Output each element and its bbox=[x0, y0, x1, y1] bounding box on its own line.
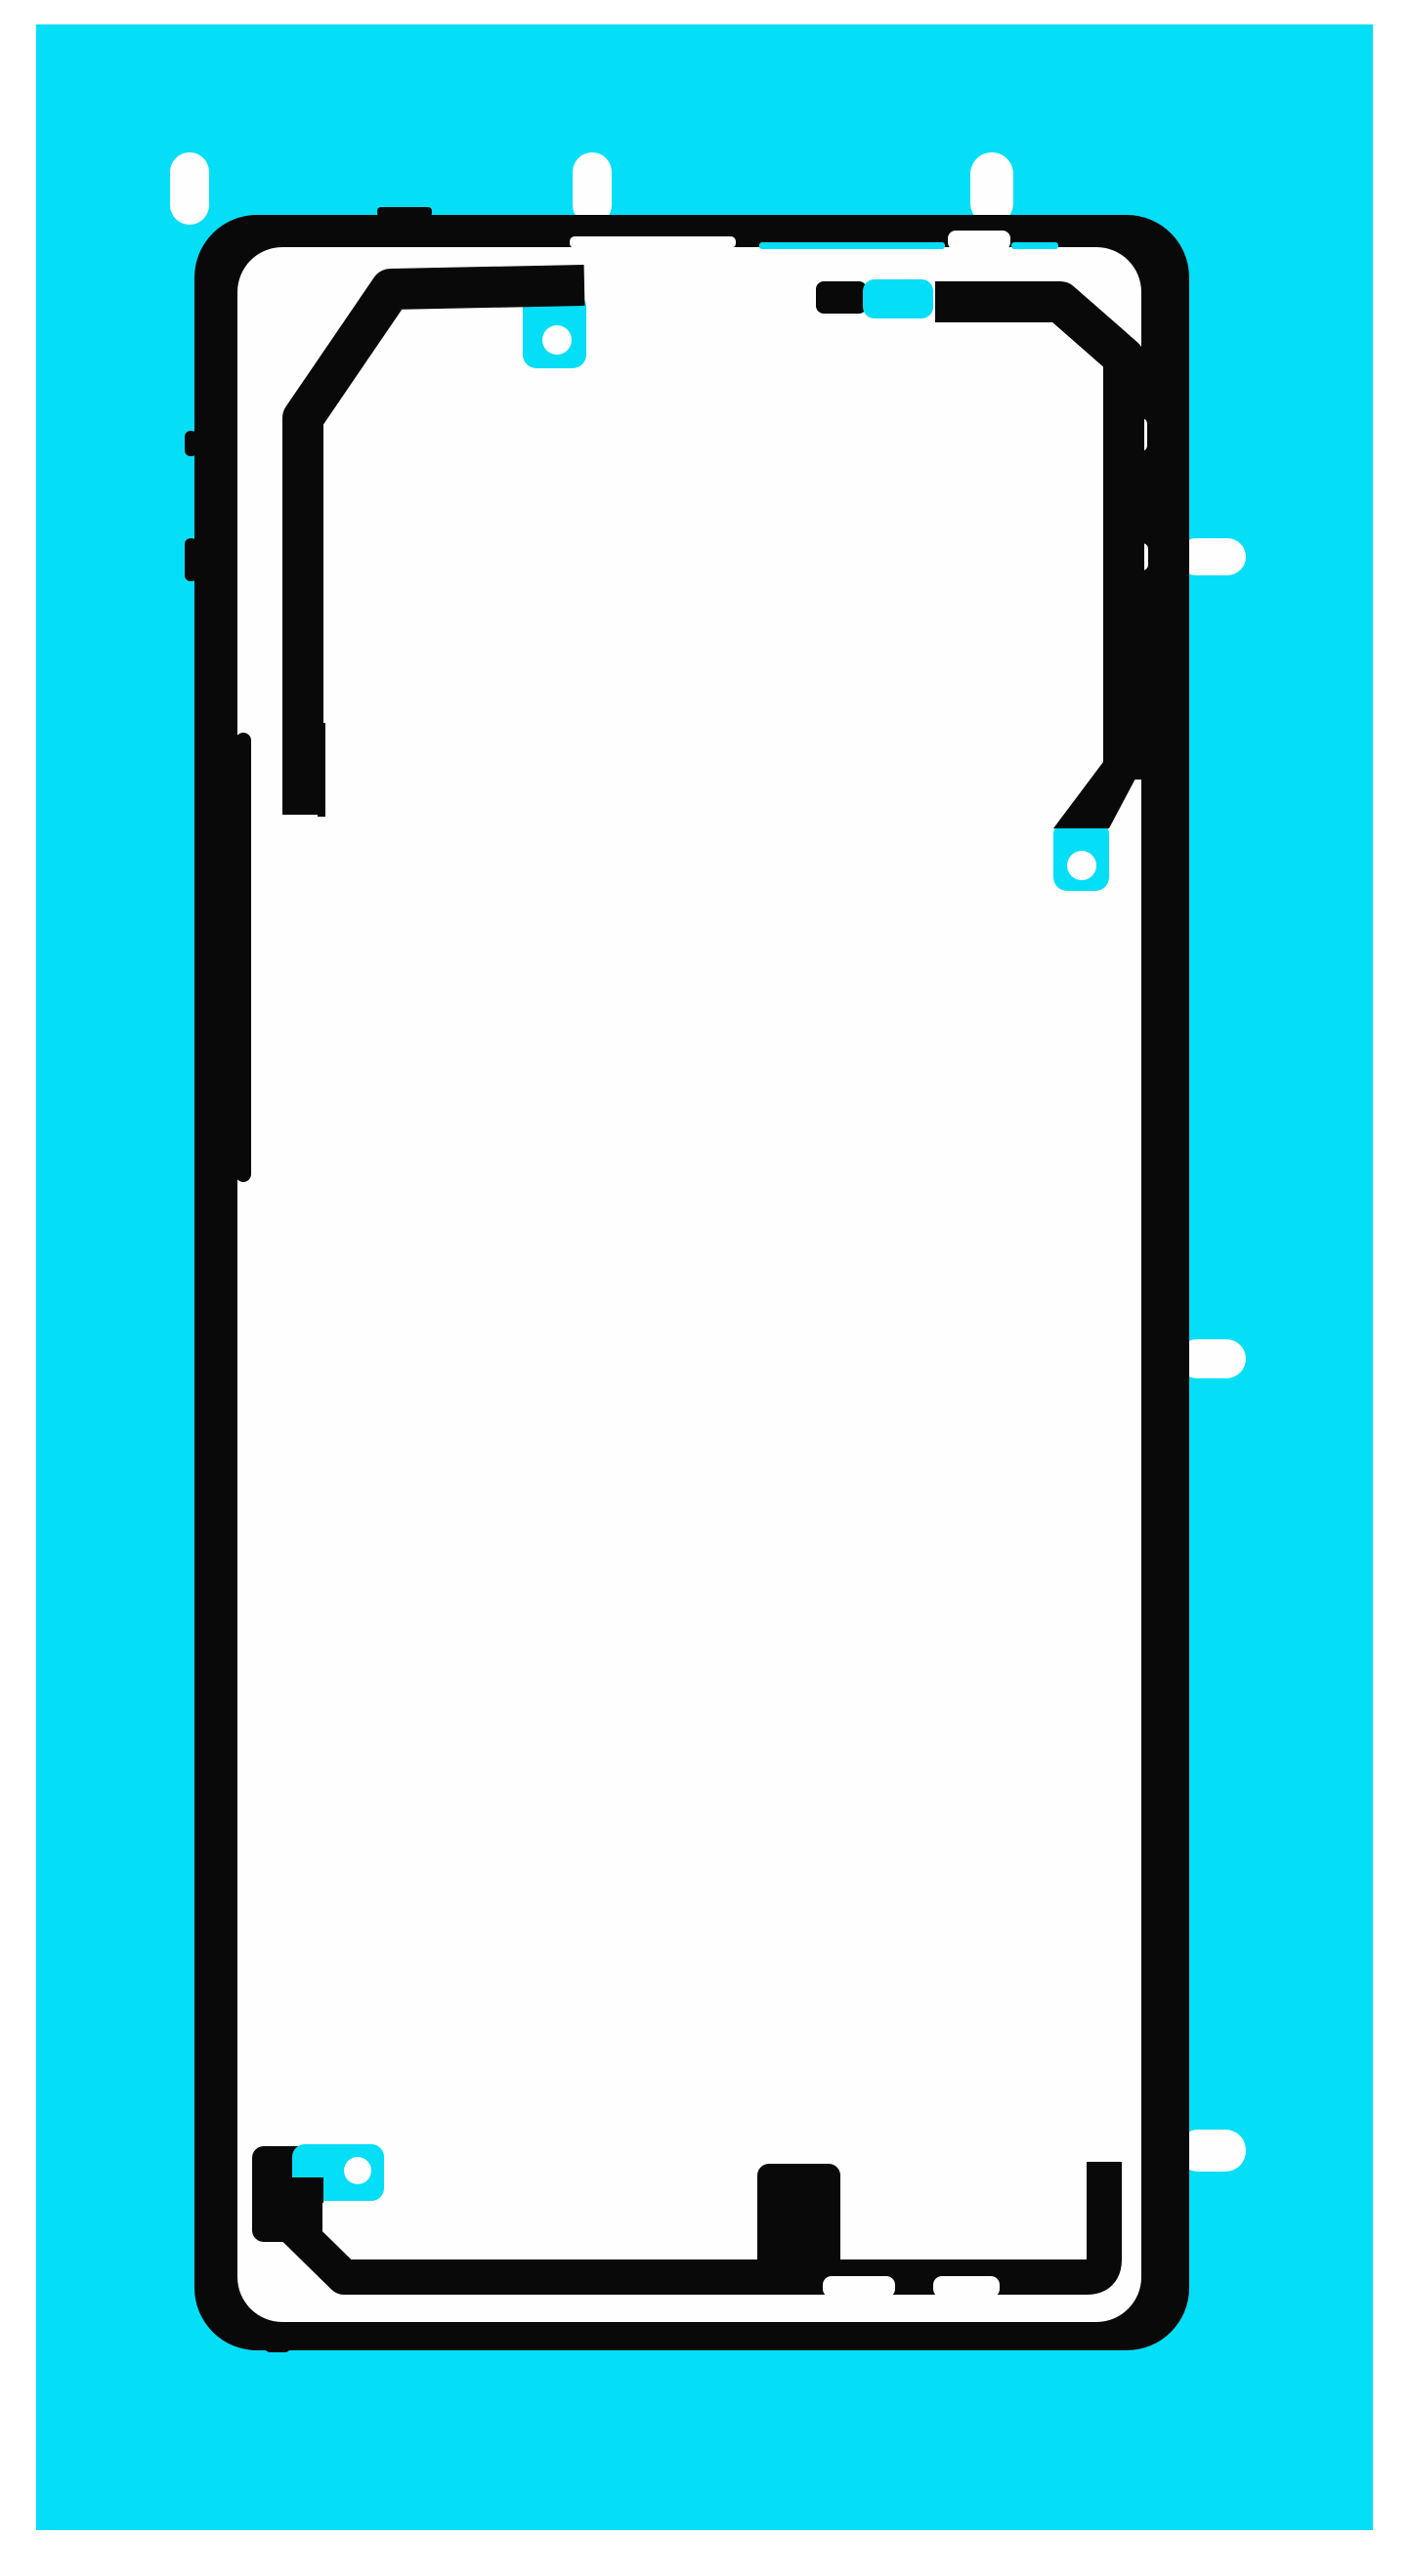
alignment-hole-right bbox=[1067, 851, 1096, 880]
alignment-hole-bottom bbox=[344, 2157, 371, 2184]
bottom-stripe-notch-left bbox=[823, 2276, 895, 2298]
left-border-widening bbox=[235, 733, 251, 1182]
bottom-left-block-overlap bbox=[292, 2177, 323, 2203]
inner-frame-left-jog bbox=[318, 723, 325, 817]
top-pull-tab-center bbox=[573, 152, 612, 225]
outer-adhesive-frame bbox=[185, 207, 1189, 2352]
top-edge-bump bbox=[377, 207, 432, 217]
liner-sliver-under-top-border-right bbox=[1011, 242, 1058, 249]
liner-sliver-under-top-border-left bbox=[759, 242, 945, 249]
bottom-stripe-notch-right bbox=[933, 2276, 1000, 2298]
left-edge-bump-upper bbox=[185, 431, 197, 456]
top-border-thin-notch bbox=[570, 236, 736, 248]
phone-interior bbox=[237, 247, 1141, 2322]
left-edge-bump-lower bbox=[185, 538, 197, 581]
top-pull-tab-left bbox=[170, 152, 209, 225]
adhesive-sticker-image bbox=[0, 0, 1412, 2576]
top-pull-tab-right bbox=[970, 152, 1013, 225]
alignment-hole-top bbox=[542, 325, 572, 355]
bottom-edge-notch bbox=[265, 2341, 290, 2352]
product-photo bbox=[0, 0, 1412, 2576]
liner-gap-top bbox=[863, 279, 933, 318]
top-border-white-notch bbox=[948, 231, 1010, 250]
usb-port-adhesive-block bbox=[757, 2164, 840, 2273]
inner-frame-top-segment bbox=[816, 281, 867, 314]
